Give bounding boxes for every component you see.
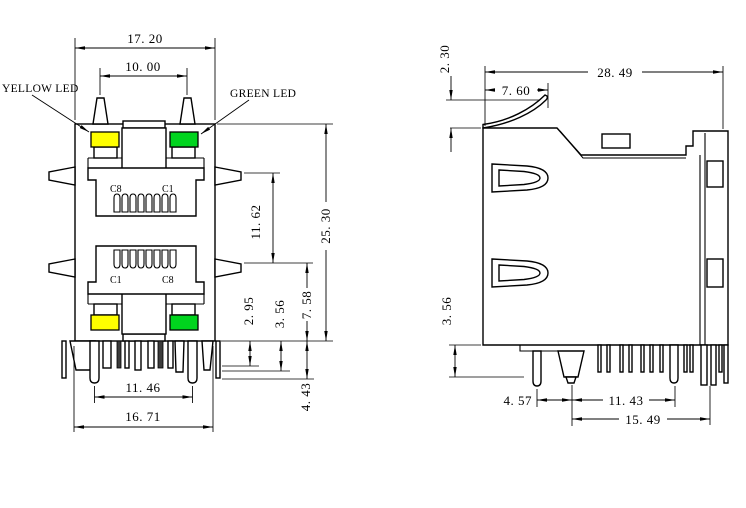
yellow-led-label: YELLOW LED [2,83,79,95]
port2-yellow-led [91,315,119,330]
dim-pin-pitch-a: 4. 57 [504,393,533,408]
side-top-slot [602,134,630,148]
dim-base-width: 16. 71 [125,409,161,424]
side-view-pins [520,345,728,386]
port1-green-led [170,132,198,147]
dim-pin-length: 4. 43 [298,383,313,412]
port2-left-contact-label: C1 [110,275,122,286]
dim-pin-pitch-c: 15. 49 [625,412,661,427]
port1-left-contact-label: C8 [110,184,122,195]
port1-yellow-led [91,132,119,147]
front-view-pins [62,341,220,383]
port1-right-contact-label: C1 [162,184,174,195]
latch-wing-upper-right [215,167,241,185]
front-view: C8 C1 C1 C8 YELLOW LED GREEN LED [2,31,333,432]
dim-body-width: 17. 20 [127,31,163,46]
front-round-pin-left [90,341,99,383]
led-post-right [180,98,195,124]
technical-drawing-page: C8 C1 C1 C8 YELLOW LED GREEN LED [0,0,746,508]
port2-right-contact-label: C8 [162,275,174,286]
side-latch-dimple-upper [492,164,548,192]
side-round-pin-a [533,351,541,386]
dim-pin-pitch-b: 11. 43 [608,393,643,408]
latch-wing-upper-left [49,167,75,185]
dim-side-standoff: 3. 56 [439,297,454,326]
flange-slot-upper [707,161,723,187]
front-round-pin-right [188,341,197,383]
dim-finger-length: 7. 60 [502,83,531,98]
dim-overall-height: 25. 30 [318,208,333,244]
dim-finger-height: 2. 30 [437,45,452,74]
dim-standoff-a: 2. 95 [241,297,256,326]
port2-green-led [170,315,198,330]
latch-wing-lower-right [215,259,241,277]
dim-latch-pitch: 11. 62 [248,204,263,239]
green-led-label: GREEN LED [230,88,296,100]
flange-slot-lower [707,259,723,287]
dim-overall-depth: 28. 49 [597,65,633,80]
dim-pin-span: 11. 46 [125,380,160,395]
side-body-shield [483,128,728,345]
green-led-leader [201,100,249,134]
led-post-left [93,98,108,124]
side-round-pin-b [670,345,678,383]
latch-wing-lower-left [49,259,75,277]
yellow-led-leader [32,95,89,132]
dim-led-post-spacing: 10. 00 [125,59,161,74]
side-latch-dimple-lower [492,259,548,287]
side-view: 2. 30 28. 49 7. 60 3. 56 4. 57 11. 43 15… [437,45,728,427]
technical-drawing-canvas: C8 C1 C1 C8 YELLOW LED GREEN LED [0,0,746,508]
dim-standoff-b: 3. 56 [272,300,287,329]
dim-lower-latch-to-base: 7. 58 [299,291,314,320]
